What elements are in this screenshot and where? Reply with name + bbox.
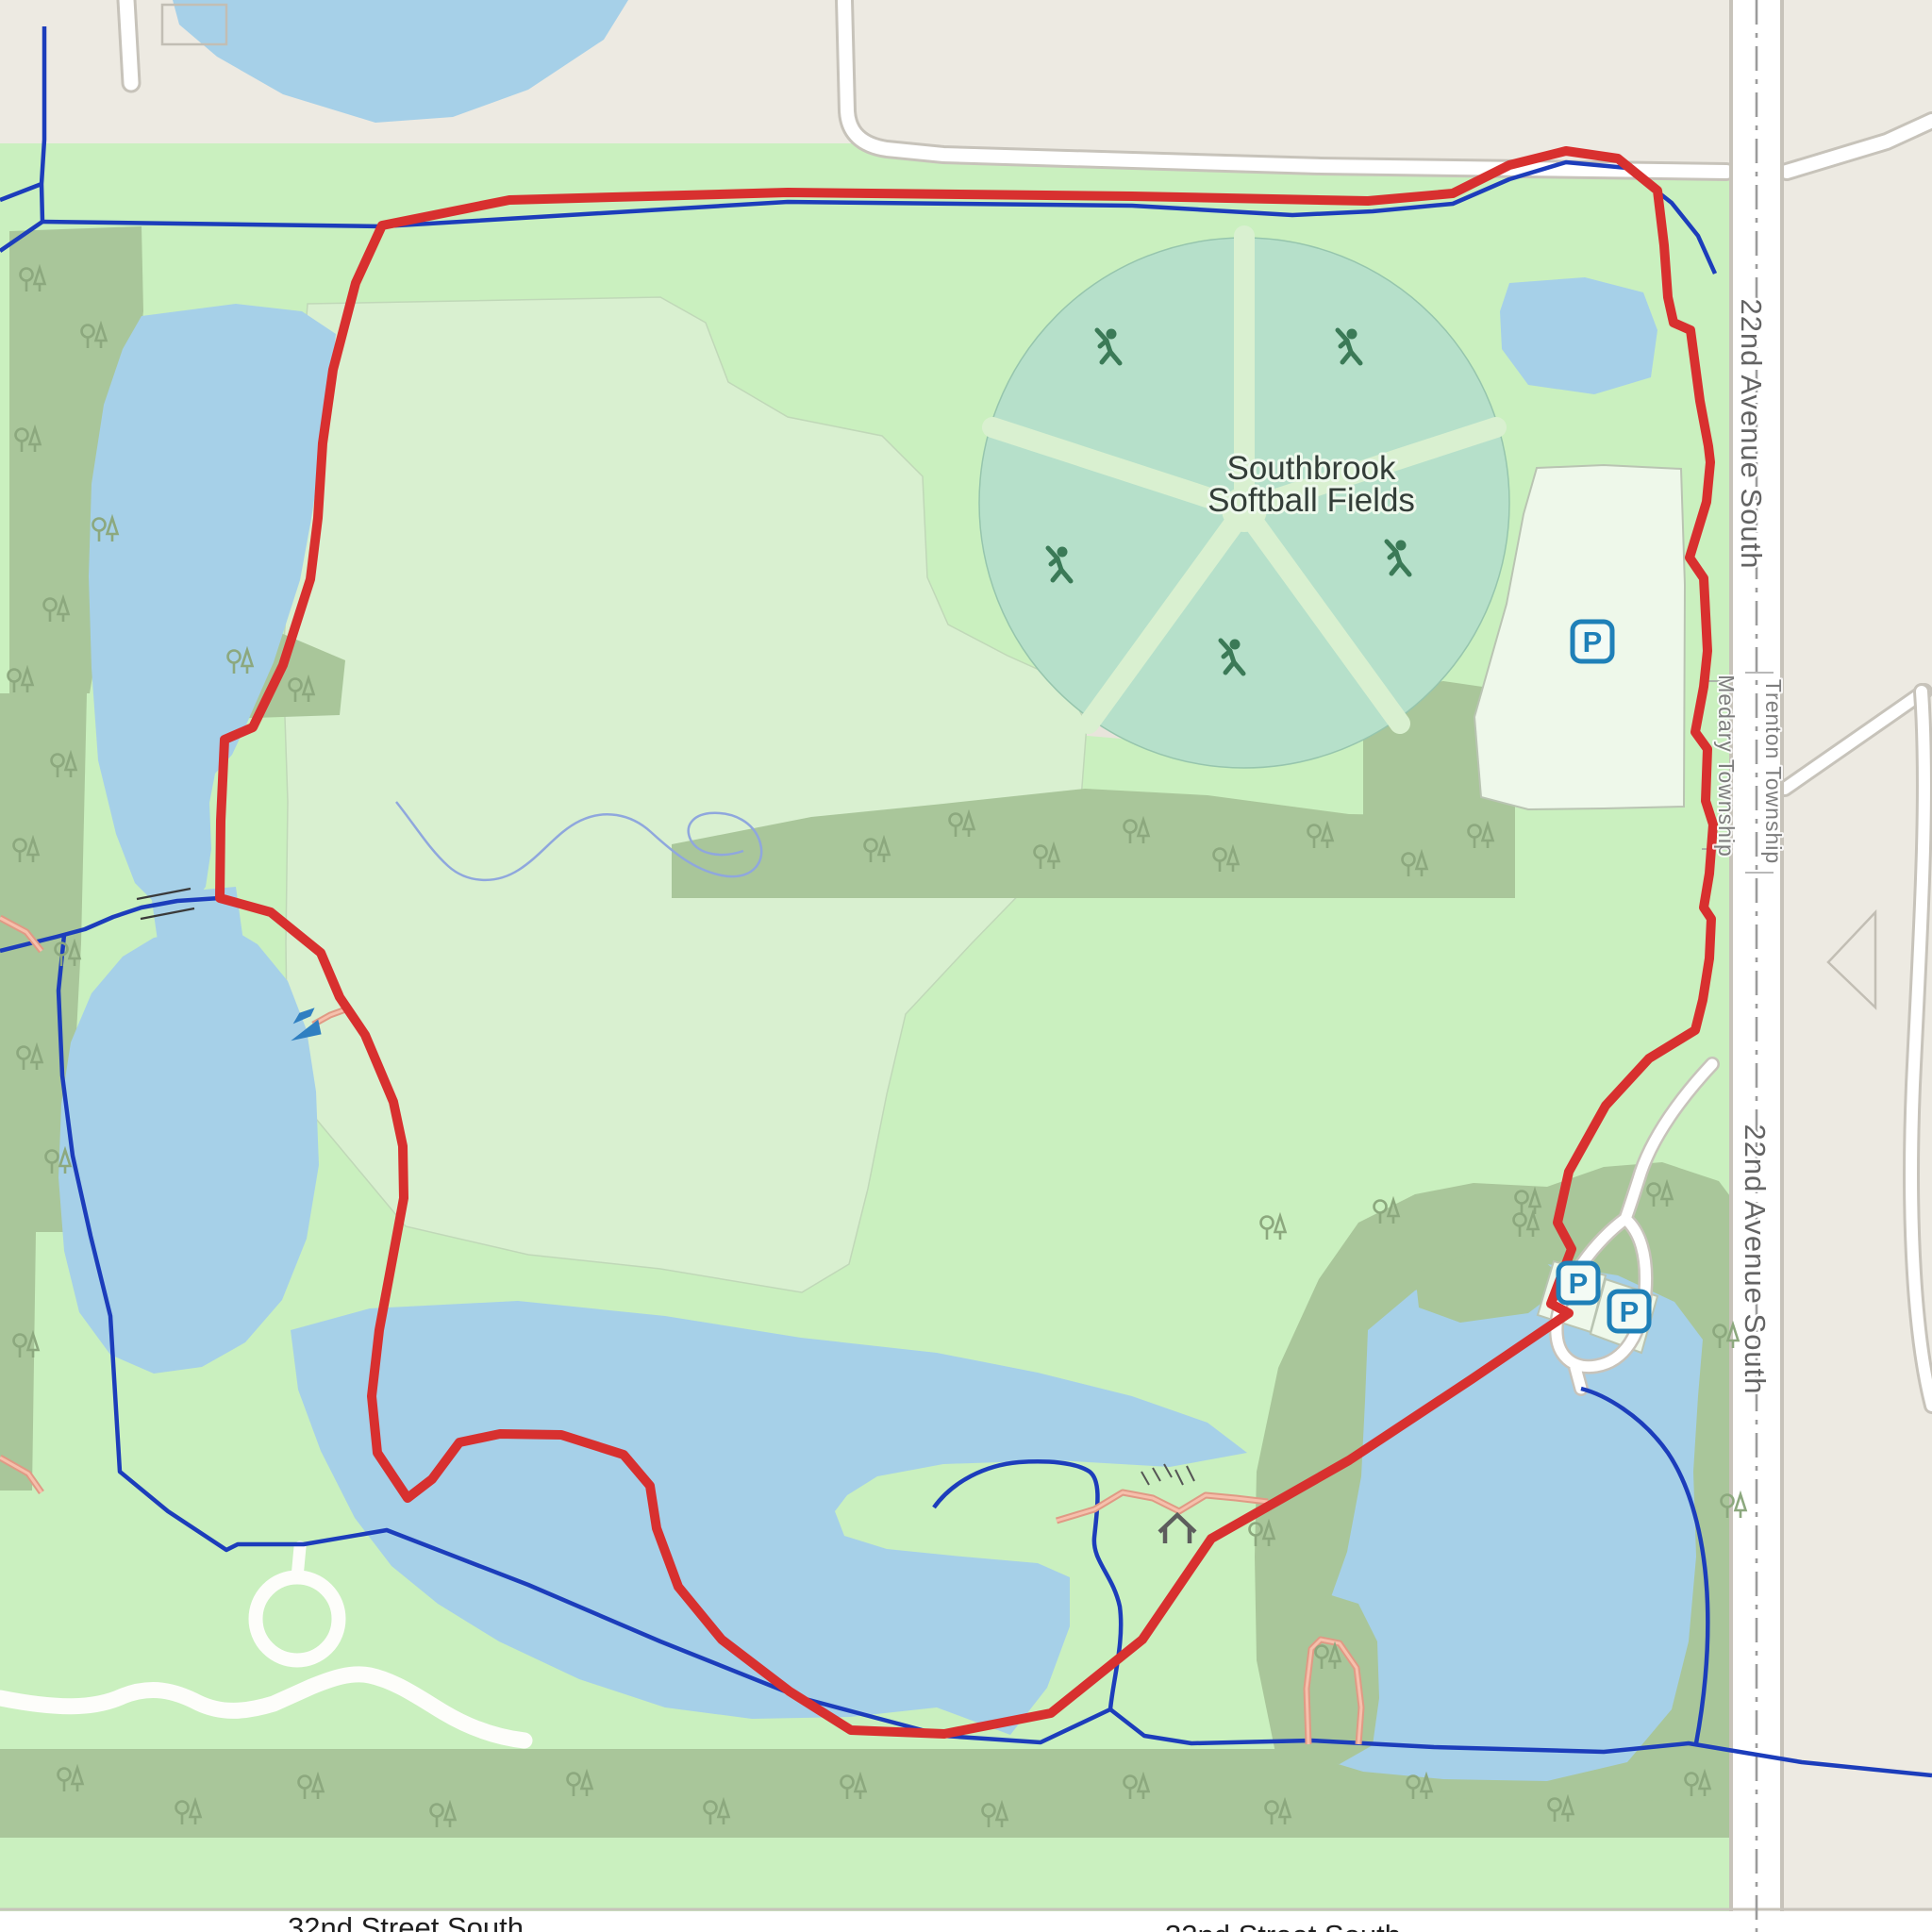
parking-icon: P xyxy=(1573,622,1612,661)
parking-letter: P xyxy=(1569,1267,1589,1300)
place-label-line2: Softball Fields xyxy=(1207,482,1415,519)
street-label-sw: 32nd Street South xyxy=(288,1911,524,1932)
parking-icon: P xyxy=(1609,1291,1649,1331)
parking-icon: P xyxy=(1558,1263,1598,1303)
map-canvas[interactable]: P P P Southbrook Softball Fields 22nd Av… xyxy=(0,0,1932,1932)
street-label-se: 32nd Street South xyxy=(1165,1919,1401,1932)
township-label-west: Medary Township xyxy=(1714,675,1739,858)
parking-letter: P xyxy=(1583,625,1603,658)
avenue-label-lower: 22nd Avenue South xyxy=(1739,1124,1772,1394)
park-map: P P P Southbrook Softball Fields 22nd Av… xyxy=(0,0,1932,1932)
parking-letter: P xyxy=(1620,1295,1640,1328)
avenue-label-upper: 22nd Avenue South xyxy=(1735,298,1768,569)
township-label-east: Trenton Township xyxy=(1761,679,1786,864)
